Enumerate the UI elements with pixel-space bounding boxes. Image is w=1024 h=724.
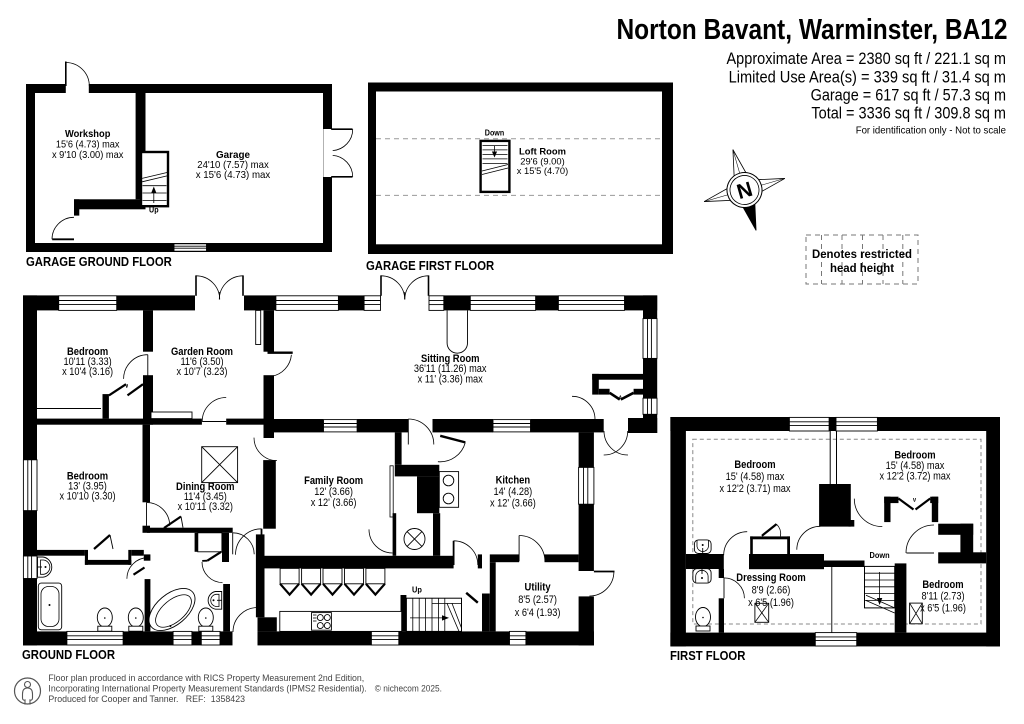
svg-text:x 6'5 (1.96): x 6'5 (1.96) (748, 597, 794, 609)
svg-text:x 10'10 (3.30): x 10'10 (3.30) (59, 491, 115, 503)
svg-text:FIRST FLOOR: FIRST FLOOR (670, 648, 746, 663)
svg-text:Kitchen: Kitchen (496, 475, 531, 487)
svg-text:GROUND FLOOR: GROUND FLOOR (22, 647, 116, 662)
svg-text:x 6'5 (1.96): x 6'5 (1.96) (920, 602, 966, 614)
svg-text:8'11 (2.73): 8'11 (2.73) (921, 591, 964, 603)
svg-text:x 11' (3.36) max: x 11' (3.36) max (418, 373, 484, 385)
svg-text:Bedroom: Bedroom (922, 579, 963, 591)
svg-text:x 9'10 (3.00) max: x 9'10 (3.00) max (52, 150, 124, 161)
svg-text:x 15'6 (4.73) max: x 15'6 (4.73) max (196, 170, 271, 181)
svg-text:15' (4.58) max: 15' (4.58) max (726, 471, 785, 483)
svg-text:x 12'2 (3.72) max: x 12'2 (3.72) max (880, 471, 952, 483)
svg-text:29'6 (9.00): 29'6 (9.00) (520, 156, 564, 166)
svg-text:Workshop: Workshop (65, 129, 110, 140)
svg-text:GARAGE GROUND FLOOR: GARAGE GROUND FLOOR (26, 254, 172, 269)
svg-text:Utility: Utility (525, 582, 551, 594)
svg-text:Up: Up (412, 585, 422, 595)
svg-text:Incorporating International Pr: Incorporating International Property Mea… (48, 684, 366, 694)
svg-text:x 10'7 (3.23): x 10'7 (3.23) (177, 366, 228, 378)
svg-text:x 12' (3.66): x 12' (3.66) (311, 497, 357, 509)
svg-text:Down: Down (485, 129, 504, 138)
svg-text:Dressing Room: Dressing Room (736, 572, 805, 584)
svg-text:x 12' (3.66): x 12' (3.66) (490, 497, 536, 509)
svg-text:8'5 (2.57): 8'5 (2.57) (518, 594, 557, 606)
svg-text:14' (4.28): 14' (4.28) (494, 486, 533, 498)
svg-text:For identification only - Not: For identification only - Not to scale (856, 126, 1007, 137)
svg-text:8'9 (2.66): 8'9 (2.66) (752, 585, 791, 597)
svg-text:© nichecom 2025.: © nichecom 2025. (375, 684, 442, 694)
svg-text:Bedroom: Bedroom (734, 459, 775, 471)
svg-text:Denotes restricted: Denotes restricted (812, 247, 912, 261)
svg-text:x 10'11 (3.32): x 10'11 (3.32) (178, 501, 233, 513)
svg-text:Norton Bavant, Warminster, BA1: Norton Bavant, Warminster, BA12 (617, 13, 1008, 45)
svg-text:Down: Down (870, 550, 890, 560)
svg-text:GARAGE FIRST FLOOR: GARAGE FIRST FLOOR (366, 258, 495, 273)
svg-text:x 15'5 (4.70): x 15'5 (4.70) (517, 166, 568, 176)
svg-text:x 10'4 (3.16): x 10'4 (3.16) (62, 366, 113, 378)
svg-text:x 12'2 (3.71) max: x 12'2 (3.71) max (720, 483, 792, 495)
svg-text:Floor plan produced in accorda: Floor plan produced in accordance with R… (48, 673, 364, 683)
svg-text:x 6'4 (1.93): x 6'4 (1.93) (515, 607, 561, 619)
svg-text:Produced for Cooper and Tanner: Produced for Cooper and Tanner. REF: 135… (48, 694, 245, 704)
svg-text:15'6 (4.73) max: 15'6 (4.73) max (56, 140, 120, 151)
svg-text:Loft Room: Loft Room (519, 147, 566, 157)
svg-text:Approximate Area = 2380 sq ft: Approximate Area = 2380 sq ft / 221.1 sq… (727, 49, 1007, 68)
svg-text:Up: Up (149, 206, 159, 215)
svg-text:Garage = 617 sq ft / 57.3 sq m: Garage = 617 sq ft / 57.3 sq m (811, 86, 1006, 105)
svg-text:Limited Use Area(s) = 339 sq f: Limited Use Area(s) = 339 sq ft / 31.4 s… (729, 68, 1006, 87)
svg-text:Total = 3336 sq ft / 309.8 sq: Total = 3336 sq ft / 309.8 sq m (811, 103, 1006, 122)
svg-text:head height: head height (830, 261, 894, 275)
